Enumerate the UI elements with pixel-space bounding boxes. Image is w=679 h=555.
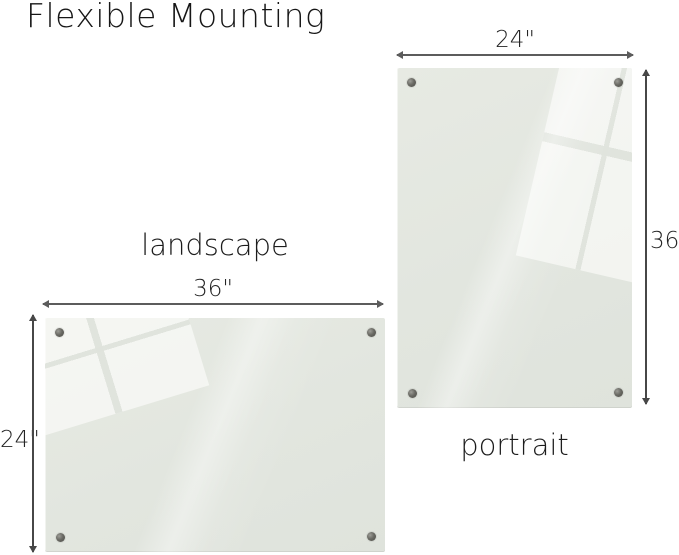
page-title: Flexible Mounting xyxy=(26,0,325,35)
screw-icon xyxy=(614,78,623,87)
screw-icon xyxy=(407,78,416,87)
window-reflection xyxy=(516,68,632,285)
screw-icon xyxy=(55,328,64,337)
product-diagram: Flexible Mounting landscape 36" 24" 24" … xyxy=(0,0,679,555)
landscape-whiteboard xyxy=(45,318,385,552)
portrait-width-dimension-line xyxy=(397,54,633,56)
landscape-height-dimension-line xyxy=(32,315,34,552)
landscape-width-dimension: 36" xyxy=(43,276,383,302)
portrait-height-dimension-line xyxy=(645,70,647,404)
screw-icon xyxy=(367,328,376,337)
screw-icon xyxy=(614,388,623,397)
window-reflection xyxy=(45,318,209,439)
screw-icon xyxy=(367,532,376,541)
portrait-width-dimension: 24" xyxy=(397,27,633,53)
landscape-width-dimension-line xyxy=(43,303,383,305)
landscape-label: landscape xyxy=(45,228,385,262)
portrait-label: portrait xyxy=(397,428,632,462)
screw-icon xyxy=(408,389,417,398)
portrait-height-dimension: 36" xyxy=(650,228,679,254)
screw-icon xyxy=(56,533,65,542)
portrait-whiteboard xyxy=(397,68,632,408)
